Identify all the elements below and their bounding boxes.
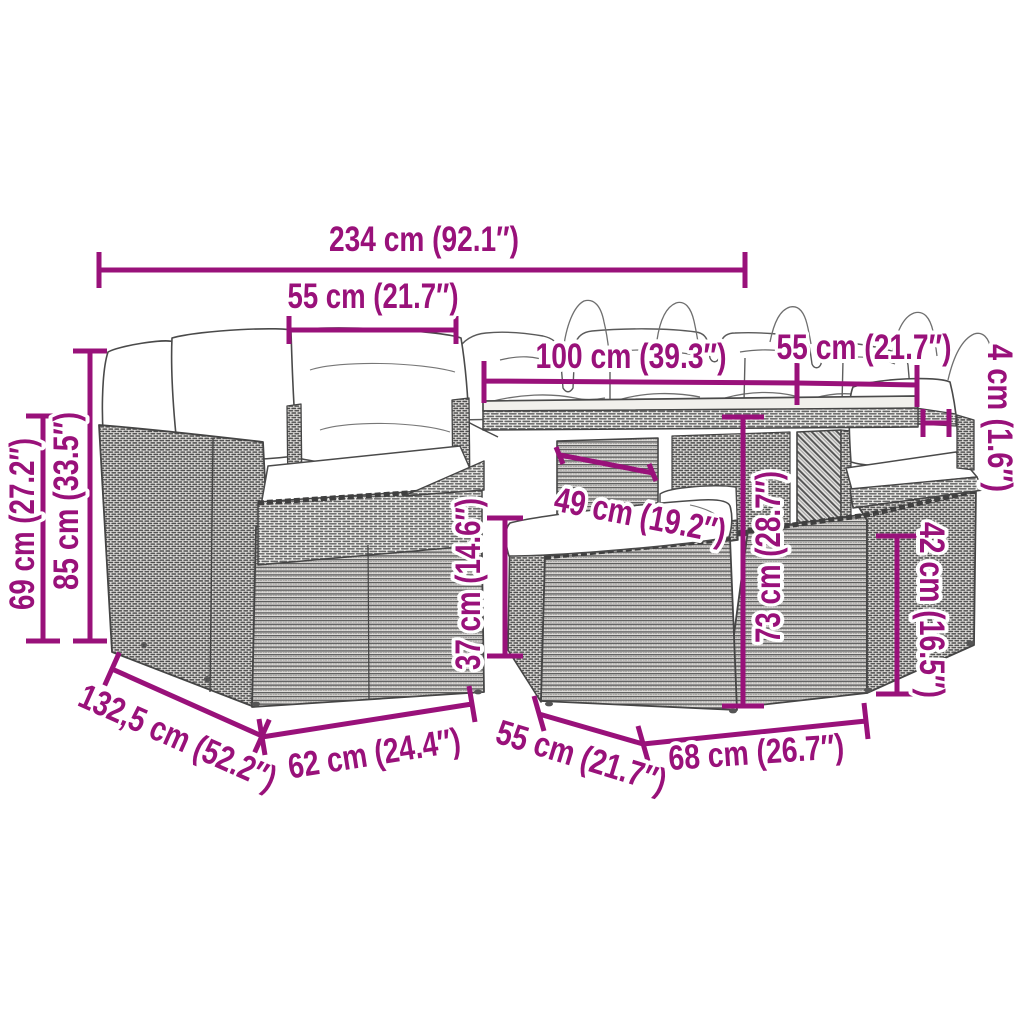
- svg-text:85 cm (33.5″): 85 cm (33.5″): [47, 412, 86, 590]
- svg-text:55 cm (21.7″): 55 cm (21.7″): [288, 277, 459, 316]
- svg-text:73 cm (28.7″): 73 cm (28.7″): [749, 471, 788, 643]
- svg-text:4 cm (1.6″): 4 cm (1.6″): [980, 344, 1019, 492]
- svg-text:100 cm (39.3″): 100 cm (39.3″): [536, 337, 727, 376]
- svg-text:234 cm (92.1″): 234 cm (92.1″): [329, 220, 519, 259]
- svg-text:37 cm (14.6″): 37 cm (14.6″): [449, 498, 488, 670]
- svg-text:55 cm (21.7″): 55 cm (21.7″): [777, 328, 952, 367]
- svg-text:69 cm (27.2″): 69 cm (27.2″): [3, 438, 42, 610]
- svg-text:42 cm (16.5″): 42 cm (16.5″): [912, 522, 951, 698]
